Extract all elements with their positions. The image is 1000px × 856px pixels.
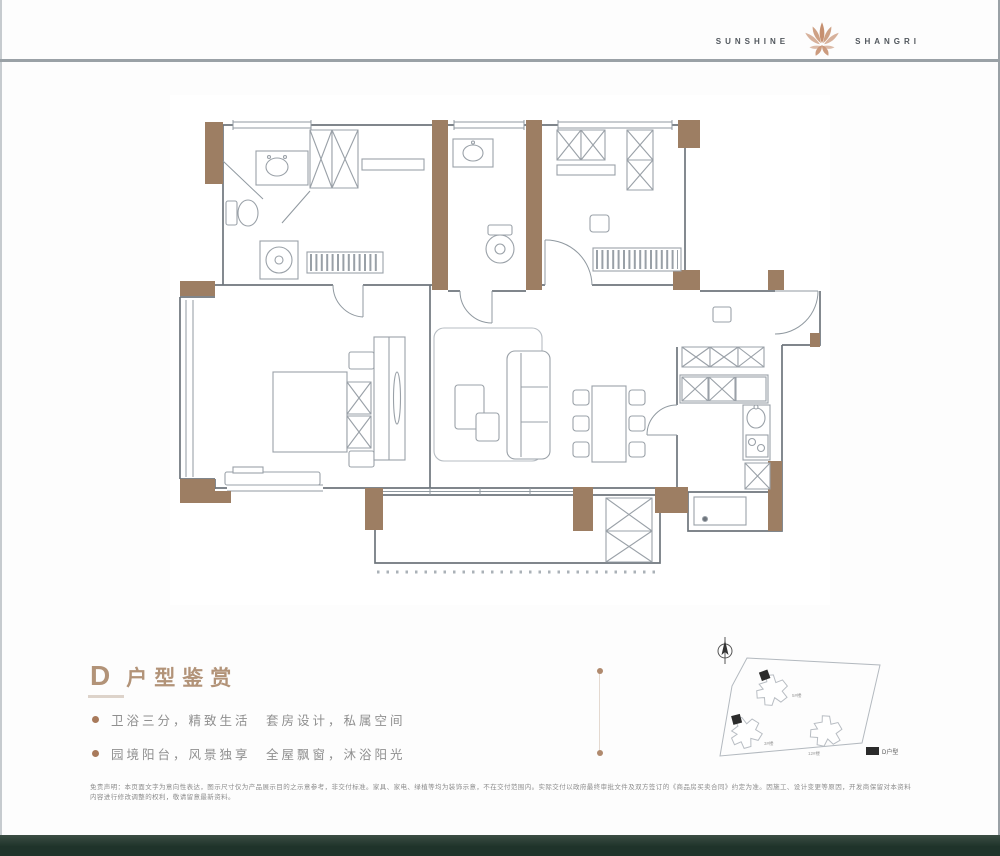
building-footprints [729, 672, 847, 751]
site-plan: 5#楼 3#楼 12#楼 D户型 [680, 633, 915, 775]
building-label: 3#楼 [764, 740, 774, 747]
brand-logo: SUNSHINE SHANGRI [716, 18, 920, 65]
unit-letter: D [90, 660, 110, 692]
section-divider [599, 672, 600, 752]
brochure-page: { "brand": { "word_left": "SUNSHINE", "w… [0, 0, 1000, 856]
disclaimer-line: 免责声明：本页面文字为意向性表达，图示尺寸仅为产品展示目的之示意参考，非交付标准… [90, 783, 912, 793]
footer-bar [0, 835, 1000, 856]
bullet-icon [92, 716, 99, 723]
north-arrow-icon [718, 637, 732, 664]
title-underline [88, 695, 124, 698]
disclaimer: 免责声明：本页面文字为意向性表达，图示尺寸仅为产品展示目的之示意参考，非交付标准… [90, 783, 912, 803]
floor-plan [170, 95, 830, 605]
building-label: 12#楼 [808, 750, 821, 757]
legend-label: D户型 [882, 748, 898, 756]
section-title: D 户型鉴赏 [90, 660, 238, 692]
building-label: 5#楼 [792, 692, 802, 699]
feature-item: 园境阳台，风景独享 全屋飘窗，沐浴阳光 [92, 744, 406, 763]
header-rule [0, 59, 1000, 62]
page-title: 户型鉴赏 [126, 662, 238, 692]
legend-swatch [866, 747, 879, 755]
disclaimer-line: 内容进行修改调整的权利，敬请留意最新资料。 [90, 793, 912, 803]
brand-word-left: SUNSHINE [716, 37, 789, 46]
page-left-border [0, 0, 2, 856]
bullet-icon [92, 750, 99, 757]
feature-item: 卫浴三分，精致生活 套房设计，私属空间 [92, 710, 406, 729]
feature-list: 卫浴三分，精致生活 套房设计，私属空间 园境阳台，风景独享 全屋飘窗，沐浴阳光 [92, 710, 406, 778]
lotus-icon [799, 18, 845, 65]
brand-word-right: SHANGRI [855, 37, 920, 46]
